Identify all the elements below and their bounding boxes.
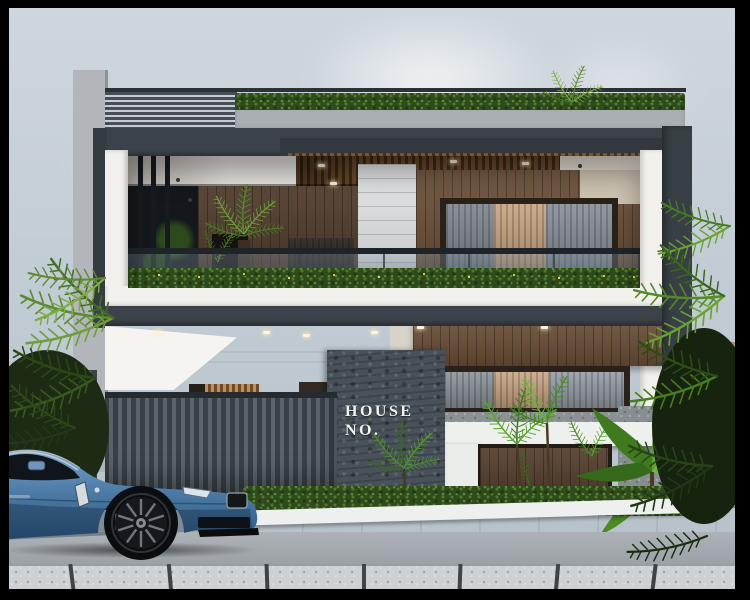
- ceiling-light: [318, 164, 325, 167]
- upper-terrace: [128, 156, 640, 288]
- roof-hedge: [235, 93, 685, 110]
- frame-left: [0, 0, 9, 600]
- ceiling-light: [176, 178, 180, 182]
- left-palm-tree: [5, 128, 131, 484]
- car-wheel: [104, 486, 178, 560]
- car-mirror: [28, 461, 45, 470]
- ceiling-light: [578, 164, 582, 168]
- car-grille: [227, 493, 247, 508]
- frame-bottom: [0, 589, 750, 600]
- ceiling-light: [450, 160, 457, 163]
- mid-fascia: [93, 306, 692, 326]
- porch-light: [155, 331, 162, 334]
- soffit-light: [541, 326, 548, 329]
- roof-louvers: [105, 92, 237, 128]
- balcony-planter: [128, 268, 640, 288]
- blue-coupe-car: [0, 441, 266, 565]
- planter-flowers: [158, 274, 160, 276]
- ceiling-light: [330, 182, 337, 185]
- frame-right: [735, 0, 750, 600]
- right-palm-trees: [632, 136, 738, 574]
- car-intake: [198, 517, 250, 528]
- porch-light: [263, 331, 270, 334]
- soffit-light: [417, 326, 424, 329]
- porch-light: [303, 334, 310, 337]
- rooftop-palm-sprig: [532, 58, 616, 108]
- door-handle: [8, 495, 30, 499]
- foreground-sidewalk: [9, 564, 736, 590]
- paving-joint: [362, 564, 366, 592]
- ceiling-light: [522, 162, 529, 165]
- ceiling-light: [188, 198, 192, 202]
- porch-light: [371, 331, 378, 334]
- ground-wood-band: [413, 326, 667, 366]
- frame-top: [0, 0, 750, 8]
- architectural-render: HOUSE NO.: [0, 0, 750, 600]
- balcony-slab: [105, 286, 664, 308]
